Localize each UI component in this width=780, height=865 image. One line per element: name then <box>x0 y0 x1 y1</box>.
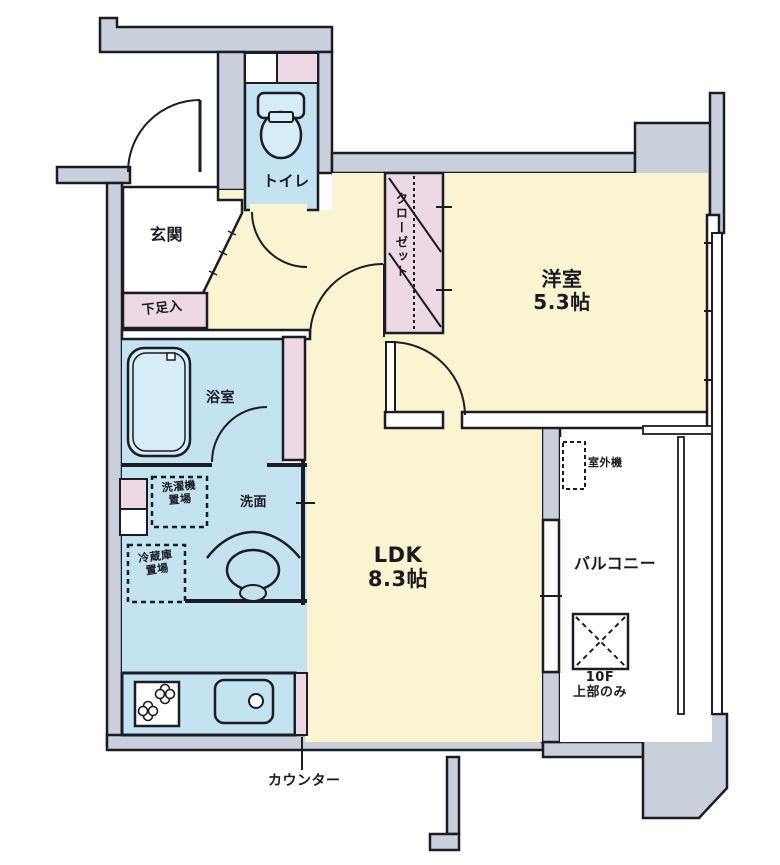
ldk-balcony-wall-upper <box>542 425 560 520</box>
bedroom-bottom-wall-stub <box>385 412 443 428</box>
kitchen-stove-icon <box>135 682 179 726</box>
outdoor-unit-box <box>563 442 585 489</box>
balcony-bottom-wall <box>543 742 643 757</box>
bathtub-icon <box>128 348 190 456</box>
bedroom-size: 5.3帖 <box>492 291 632 314</box>
toilet-doorway-gap <box>250 204 307 214</box>
ldk-balcony-wall-lower <box>542 672 560 742</box>
entrance-label: 玄関 <box>150 226 183 244</box>
ldk-label: LDK 8.3帖 <box>328 543 468 591</box>
toilet-left-wall <box>218 52 245 190</box>
left-corridor-stub <box>57 167 130 183</box>
bedroom-name: 洋室 <box>492 268 632 291</box>
toilet-label: トイレ <box>263 173 310 190</box>
top-wall-band <box>100 18 332 52</box>
toilet-icon <box>258 93 304 158</box>
toilet-top-pink-block <box>277 53 318 83</box>
top-right-pillar-edge <box>710 93 724 233</box>
left-outer-wall <box>107 183 122 745</box>
balcony-label: バルコニー <box>574 555 656 573</box>
hall-floor-a <box>332 173 385 340</box>
washer-space-label: 洗濯機 置場 <box>151 479 208 509</box>
counter-label: カウンター <box>268 773 341 789</box>
balcony-top-rail <box>643 426 712 434</box>
kitchen-counter <box>122 673 307 770</box>
pipe-space-pink <box>120 479 147 509</box>
hatch-note-label: 10F 上部のみ <box>560 671 640 701</box>
hatch-box-icon <box>573 614 628 669</box>
ldk-name: LDK <box>328 543 468 567</box>
bathroom-label: 浴室 <box>206 390 235 406</box>
bottom-jog-foot <box>430 834 459 850</box>
kitchen-sink-icon <box>215 680 273 723</box>
closet-label: クローゼット <box>393 192 407 279</box>
bedroom-label: 洋室 5.3帖 <box>492 268 632 314</box>
washroom-floor <box>122 465 307 605</box>
balcony-outer-wall <box>712 233 722 714</box>
toilet-right-wall <box>318 52 332 173</box>
outdoor-unit-label: 室外機 <box>588 457 623 470</box>
balcony-inner-rail <box>678 437 684 714</box>
hall-floor-b <box>245 210 332 340</box>
bedroom-top-wall <box>332 153 635 173</box>
pipe-space-white <box>120 509 147 535</box>
toilet-top-white-block <box>245 53 277 83</box>
ldk-size: 8.3帖 <box>328 567 468 591</box>
bottom-jog-wall <box>447 757 459 834</box>
floorplan: 玄関 下足入 トイレ クローゼット 洋室 5.3帖 浴室 洗面 洗濯機 置場 冷… <box>0 0 780 865</box>
floorplan-drawing <box>0 0 780 865</box>
bath-pink-wall <box>283 337 305 460</box>
washroom-label: 洗面 <box>240 496 267 511</box>
counter-pink-end <box>295 673 307 735</box>
bedroom-door-leaf <box>386 342 395 412</box>
entrance-door-arc <box>128 100 200 172</box>
